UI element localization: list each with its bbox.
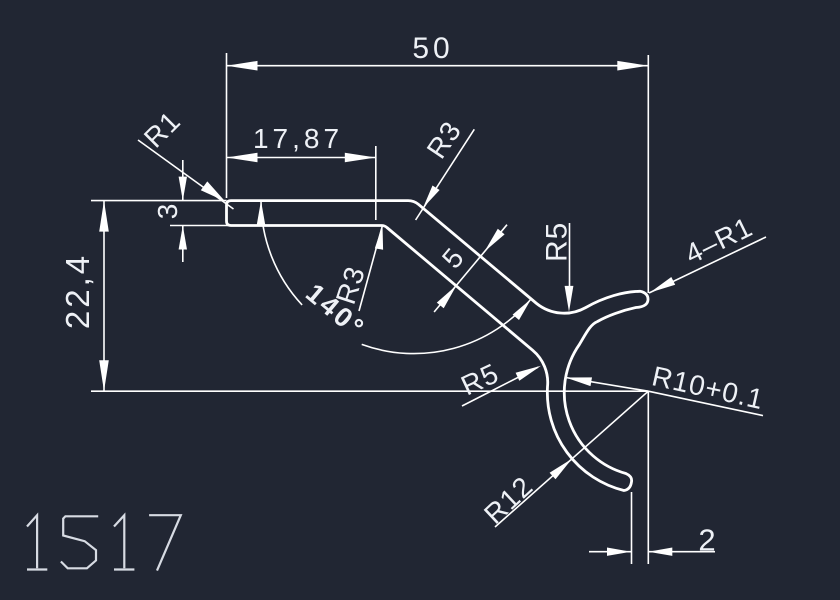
svg-text:2: 2: [698, 523, 716, 558]
svg-text:22,4: 22,4: [59, 253, 96, 329]
svg-text:3: 3: [152, 203, 183, 220]
svg-text:50: 50: [412, 32, 453, 65]
svg-text:17,87: 17,87: [253, 123, 343, 154]
svg-text:R5: R5: [541, 222, 574, 262]
